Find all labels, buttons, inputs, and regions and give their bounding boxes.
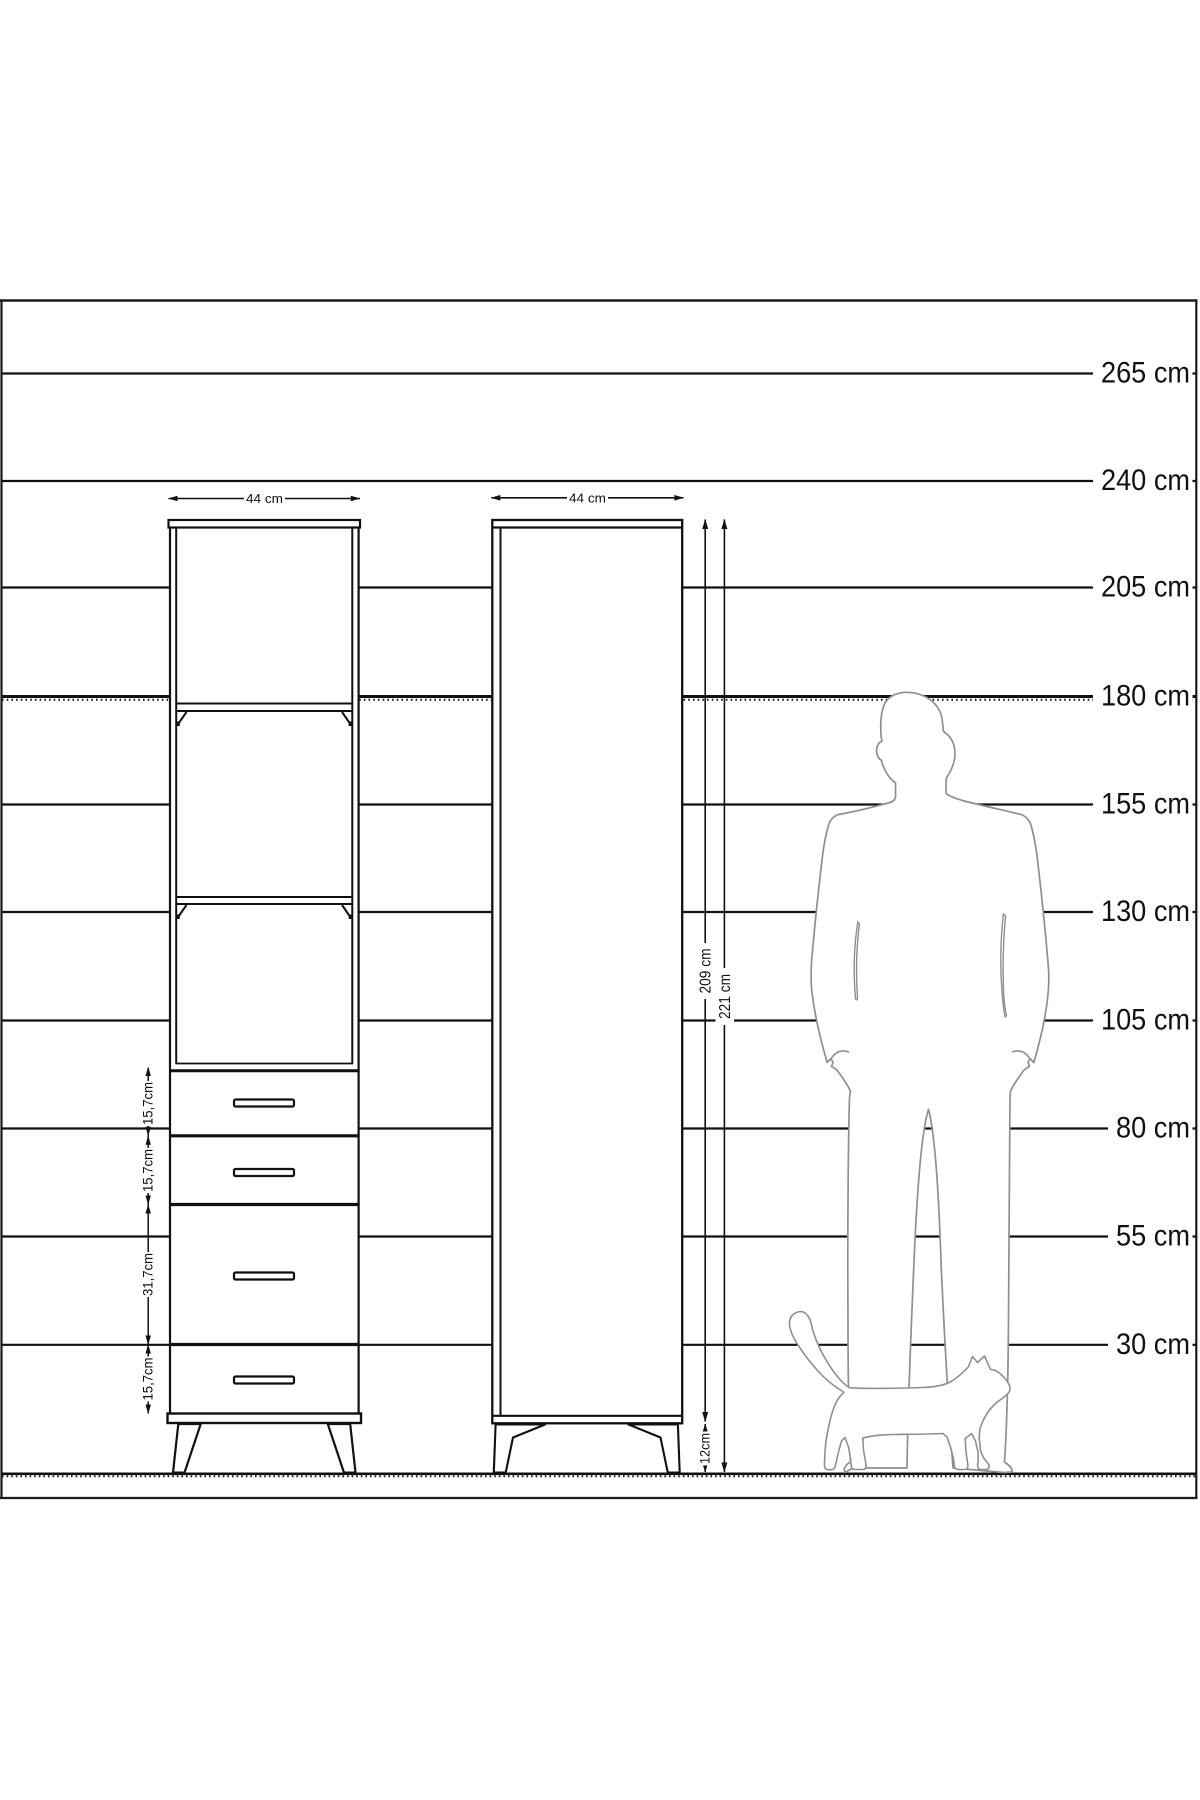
svg-text:31,7cm: 31,7cm bbox=[141, 1253, 156, 1296]
svg-text:265 cm: 265 cm bbox=[1101, 357, 1190, 390]
svg-text:209 cm: 209 cm bbox=[698, 949, 715, 994]
svg-text:55 cm: 55 cm bbox=[1116, 1220, 1190, 1253]
svg-text:221 cm: 221 cm bbox=[717, 974, 734, 1019]
svg-text:240 cm: 240 cm bbox=[1101, 464, 1190, 497]
svg-text:15,7cm: 15,7cm bbox=[141, 1082, 156, 1125]
svg-text:30 cm: 30 cm bbox=[1116, 1328, 1190, 1361]
svg-text:80 cm: 80 cm bbox=[1116, 1112, 1190, 1145]
svg-text:44 cm: 44 cm bbox=[569, 490, 606, 505]
svg-text:105 cm: 105 cm bbox=[1101, 1004, 1190, 1037]
svg-text:205 cm: 205 cm bbox=[1101, 571, 1190, 604]
svg-text:180 cm: 180 cm bbox=[1101, 680, 1190, 713]
svg-text:15,7cm: 15,7cm bbox=[141, 1149, 156, 1192]
svg-text:44 cm: 44 cm bbox=[246, 491, 283, 506]
svg-text:15,7cm: 15,7cm bbox=[141, 1358, 156, 1401]
svg-text:12cm: 12cm bbox=[697, 1433, 713, 1464]
svg-text:155 cm: 155 cm bbox=[1101, 788, 1190, 821]
svg-text:130 cm: 130 cm bbox=[1101, 895, 1190, 928]
